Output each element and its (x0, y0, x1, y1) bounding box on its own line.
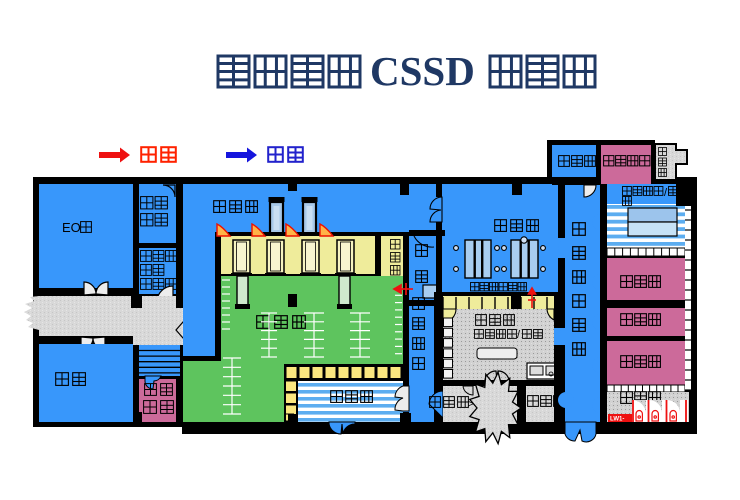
svg-text:LW1-: LW1- (610, 417, 624, 423)
svg-text:EO: EO (62, 220, 81, 235)
svg-text:CSSD: CSSD (370, 48, 475, 94)
